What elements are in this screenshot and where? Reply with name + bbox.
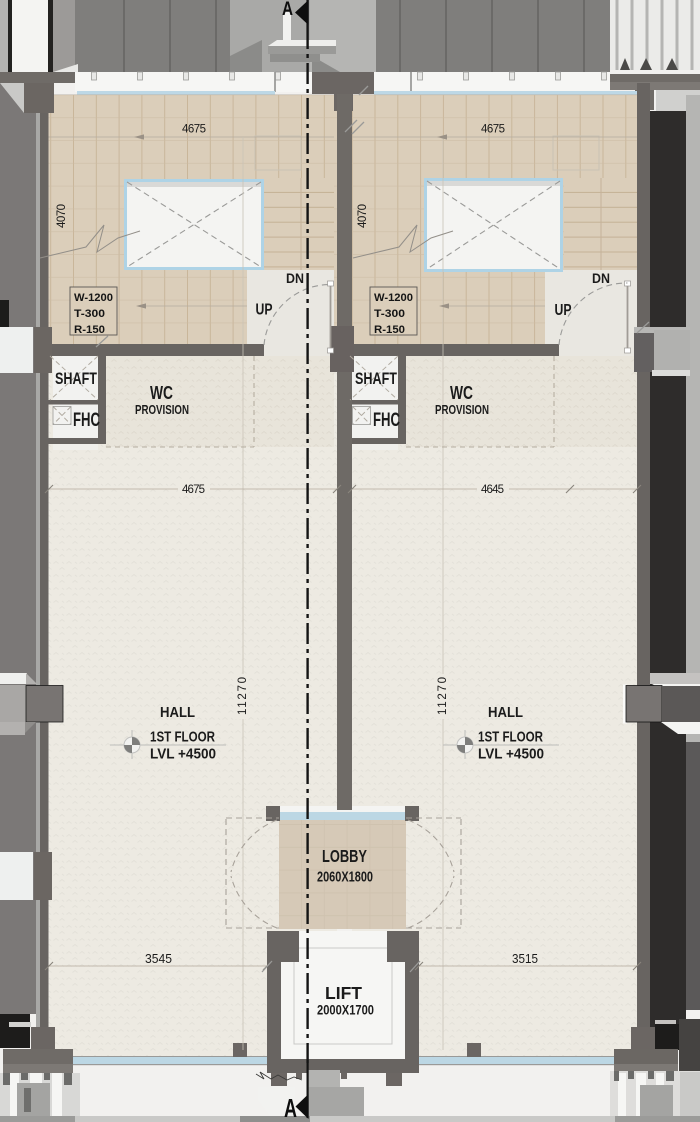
svg-text:A: A	[282, 0, 293, 20]
svg-text:4675: 4675	[182, 124, 206, 136]
svg-text:1ST FLOOR: 1ST FLOOR	[150, 730, 215, 746]
svg-text:HALL: HALL	[488, 704, 523, 721]
svg-text:A: A	[284, 1093, 297, 1122]
svg-text:2060X1800: 2060X1800	[317, 870, 373, 886]
svg-text:W-1200: W-1200	[74, 292, 113, 304]
svg-text:PROVISION: PROVISION	[435, 403, 489, 417]
svg-text:SHAFT: SHAFT	[355, 370, 397, 388]
svg-text:4070: 4070	[56, 204, 68, 228]
svg-text:W-1200: W-1200	[374, 292, 413, 304]
svg-text:4675: 4675	[481, 124, 505, 136]
svg-text:4675: 4675	[182, 484, 205, 496]
svg-text:T-300: T-300	[74, 308, 105, 320]
svg-text:FHC: FHC	[73, 410, 100, 431]
svg-text:WC: WC	[450, 382, 473, 403]
svg-text:R-150: R-150	[74, 324, 105, 336]
svg-text:LVL +4500: LVL +4500	[150, 747, 216, 763]
svg-text:FHC: FHC	[373, 410, 400, 431]
svg-text:1ST FLOOR: 1ST FLOOR	[478, 730, 543, 746]
svg-text:WC: WC	[150, 382, 173, 403]
svg-text:LOBBY: LOBBY	[322, 846, 367, 866]
svg-text:LIFT: LIFT	[325, 983, 362, 1003]
svg-text:UP: UP	[256, 302, 273, 319]
svg-text:PROVISION: PROVISION	[135, 403, 189, 417]
svg-text:R-150: R-150	[374, 324, 405, 336]
svg-text:4070: 4070	[357, 204, 369, 228]
svg-text:T-300: T-300	[374, 308, 405, 320]
svg-text:4645: 4645	[481, 484, 504, 496]
svg-text:DN: DN	[592, 270, 610, 286]
svg-text:LVL +4500: LVL +4500	[478, 747, 544, 763]
svg-text:SHAFT: SHAFT	[55, 370, 97, 388]
svg-text:UP: UP	[555, 302, 572, 319]
svg-text:HALL: HALL	[160, 704, 195, 721]
svg-text:3545: 3545	[145, 952, 172, 966]
svg-text:2000X1700: 2000X1700	[317, 1002, 374, 1018]
svg-text:DN: DN	[286, 270, 304, 286]
svg-text:3515: 3515	[512, 952, 538, 966]
